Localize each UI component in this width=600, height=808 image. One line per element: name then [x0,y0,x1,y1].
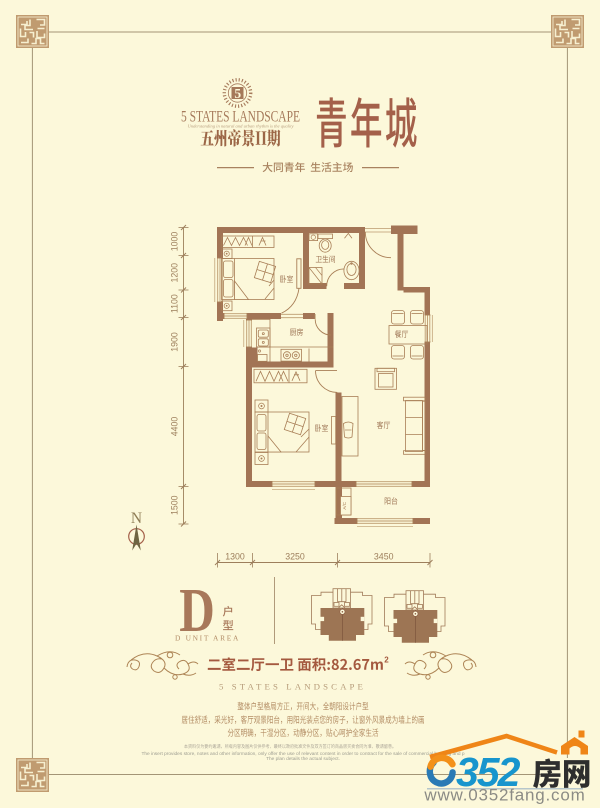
svg-text:2: 2 [384,656,389,665]
svg-text:The plan details the actual su: The plan details the actual subject. [266,756,340,762]
svg-text:1000: 1000 [170,232,180,252]
svg-text:1900: 1900 [170,332,180,352]
svg-text:1300: 1300 [225,552,245,562]
svg-text:The insert provides store, not: The insert provides store, notes and oth… [141,751,464,757]
svg-text:5: 5 [234,86,241,101]
svg-text:A/C: A/C [342,501,347,509]
svg-text:www.0352fang.com: www.0352fang.com [423,786,585,805]
svg-text:3250: 3250 [285,552,305,562]
svg-text:1100: 1100 [170,294,180,313]
svg-text:Understanding in natural and u: Understanding in natural and urban rhyth… [187,124,294,129]
svg-text:1200: 1200 [170,263,180,283]
svg-text:1500: 1500 [170,495,180,515]
svg-text:5 STATES LANDSCAPE: 5 STATES LANDSCAPE [219,682,366,692]
svg-text:3450: 3450 [374,552,394,562]
svg-text:D UNIT AREA: D UNIT AREA [175,634,240,643]
svg-text:N: N [131,510,142,527]
svg-text:4400: 4400 [170,417,180,437]
